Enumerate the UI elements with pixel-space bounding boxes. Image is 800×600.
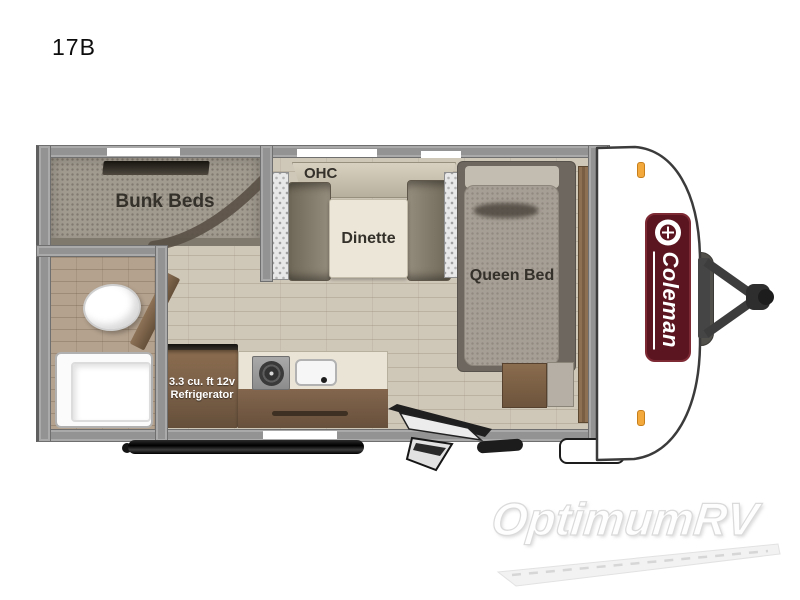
wall-bathroom-side	[155, 245, 168, 442]
ohc-label: OHC	[304, 165, 337, 182]
rv-floorplan-image: 17B 3.3 cu. ft 12v Refrigerator	[0, 0, 800, 600]
refrigerator-label-line2: Refrigerator	[166, 389, 238, 402]
coleman-badge: Coleman	[645, 213, 691, 362]
window-kitchen	[263, 431, 337, 439]
tub-shower	[55, 352, 153, 428]
optimumrv-watermark: OptimumRV	[478, 492, 800, 600]
wall-rear	[36, 145, 51, 442]
stove	[252, 356, 290, 390]
wall-bunk-partition	[260, 145, 273, 282]
tongue-hitch	[696, 252, 780, 344]
queen-bed-pillows	[474, 203, 538, 218]
awning-tube	[128, 440, 364, 454]
tub-basin	[71, 362, 151, 422]
dinette-label: Dinette	[329, 199, 408, 278]
faucet-icon	[321, 377, 327, 383]
kitchen-cabinet-front	[238, 389, 388, 428]
kitchen-sink	[295, 359, 337, 386]
coleman-lantern-icon	[655, 219, 681, 245]
nightstand	[547, 362, 574, 407]
road-graphic	[478, 540, 800, 595]
queen-bed-label: Queen Bed	[468, 267, 556, 285]
stove-burner-icon	[259, 361, 284, 386]
refrigerator: 3.3 cu. ft 12v Refrigerator	[166, 350, 238, 428]
clearance-light-icon	[637, 410, 645, 426]
window-bunk	[107, 148, 180, 156]
window-dinette	[297, 149, 377, 157]
cabinet-handle	[272, 411, 348, 416]
bunk-beds-label: Bunk Beds	[92, 191, 238, 213]
brand-name: Coleman	[653, 251, 683, 349]
dinette-bench-left	[288, 182, 331, 281]
coleman-badge-inner: Coleman	[647, 215, 689, 360]
refrigerator-label-line1: 3.3 cu. ft 12v	[166, 376, 238, 389]
wall-bathroom-partition	[36, 245, 168, 257]
entry-door-steps	[383, 398, 528, 490]
clearance-light-icon	[637, 162, 645, 178]
wardrobe-left	[272, 172, 289, 280]
watermark-text: OptimumRV	[489, 492, 800, 546]
window-bed	[421, 151, 461, 158]
model-label: 17B	[52, 34, 96, 61]
